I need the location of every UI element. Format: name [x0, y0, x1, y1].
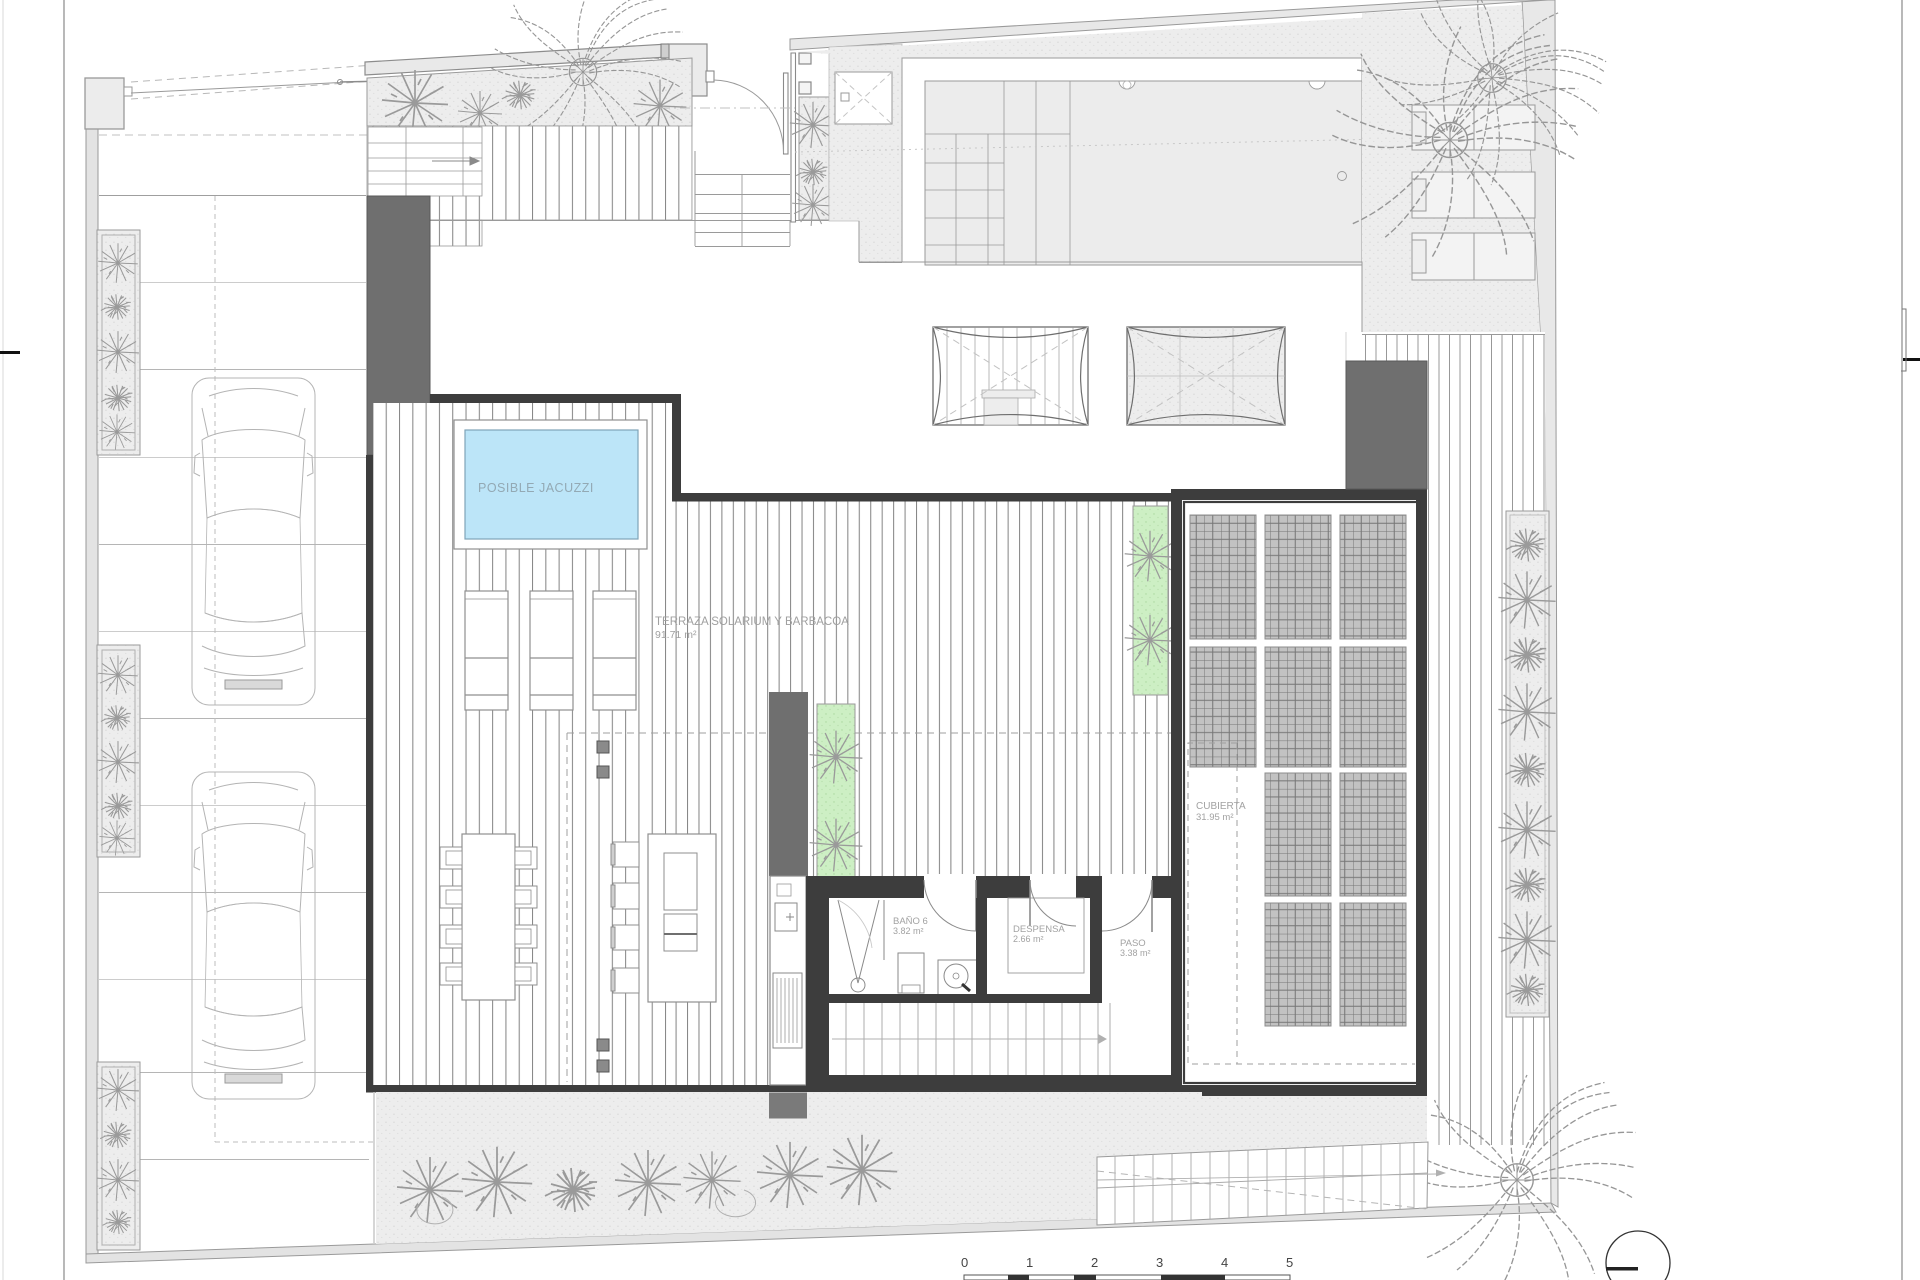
svg-text:91.71 m²: 91.71 m²	[655, 629, 697, 641]
svg-text:3.82 m²: 3.82 m²	[893, 926, 924, 936]
svg-text:2: 2	[1091, 1255, 1098, 1270]
svg-text:0: 0	[961, 1255, 968, 1270]
svg-text:2.66 m²: 2.66 m²	[1013, 934, 1044, 944]
svg-text:5: 5	[1286, 1255, 1293, 1270]
svg-text:TERRAZA SOLARIUM Y BARBACOA: TERRAZA SOLARIUM Y BARBACOA	[655, 616, 849, 628]
svg-text:3.38 m²: 3.38 m²	[1120, 948, 1151, 958]
svg-text:31.95 m²: 31.95 m²	[1196, 812, 1234, 823]
svg-text:CUBIERTA: CUBIERTA	[1196, 801, 1246, 812]
svg-text:1: 1	[1026, 1255, 1033, 1270]
svg-text:3: 3	[1156, 1255, 1163, 1270]
svg-text:4: 4	[1221, 1255, 1228, 1270]
svg-text:POSIBLE JACUZZI: POSIBLE JACUZZI	[478, 481, 594, 495]
